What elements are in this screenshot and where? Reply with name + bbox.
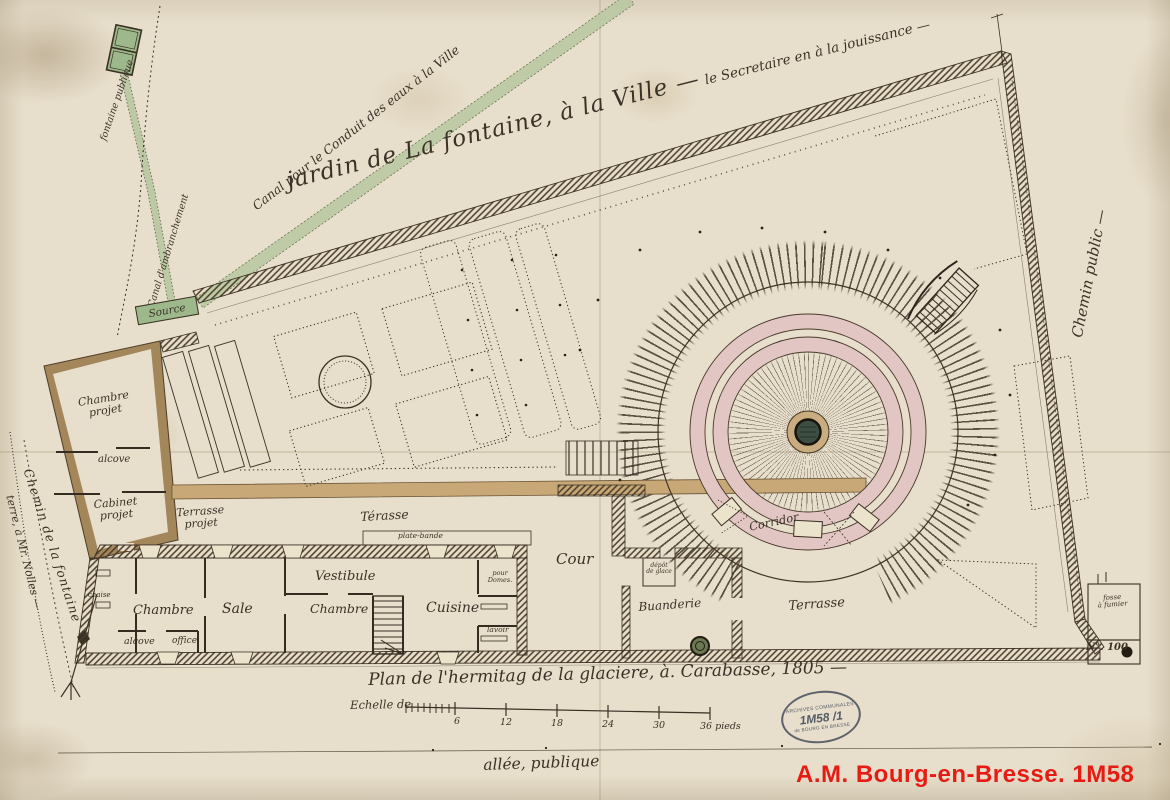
- room-depot-glace: dépôt de glace: [644, 563, 674, 576]
- glaciere: [658, 258, 985, 582]
- room-chaise: chaise: [88, 592, 111, 599]
- room-office: office: [172, 637, 197, 646]
- parcel-number: N°. 100: [1086, 643, 1128, 654]
- terrace-band: [172, 478, 866, 499]
- room-lavoir: lavoir: [487, 626, 509, 634]
- right-beds: [875, 99, 1088, 628]
- room-alcove-2: alcove: [98, 455, 130, 466]
- room-chambre-2: Chambre: [310, 602, 368, 615]
- room-sale: Sale: [222, 602, 253, 617]
- room-cuisine: Cuisine: [426, 601, 479, 616]
- room-pour-domestiques: pour Domes.: [485, 570, 515, 584]
- scale-label: Echelle de: [350, 698, 411, 711]
- scale-tick-18: 18: [550, 718, 564, 729]
- area-terasse-2: Térasse: [360, 507, 409, 523]
- fosse-fumier-label: fosse à fumier: [1090, 593, 1135, 611]
- room-vestibule: Vestibule: [315, 570, 376, 584]
- room-chambre-1: Chambre: [133, 604, 194, 618]
- scale-tick-36: 36 pieds: [700, 721, 741, 732]
- allee-publique-label: allée, publique: [483, 753, 600, 773]
- parterre: [163, 222, 603, 486]
- plan-scan: Canal pour le Conduit des eaux à la Vill…: [0, 0, 1170, 800]
- glaciere-stairs: [903, 258, 985, 343]
- room-alcove-1: alcove: [124, 637, 155, 647]
- scale-tick-12: 12: [499, 717, 513, 728]
- archive-reference: A.M. Bourg-en-Bresse. 1M58: [796, 761, 1134, 789]
- area-cour: Cour: [556, 552, 593, 568]
- allee-lines: [58, 743, 1161, 753]
- garden-tree-dots: [461, 227, 1012, 507]
- scale-tick-24: 24: [601, 719, 615, 730]
- area-terrasse-projet: Terrasse projet: [168, 504, 233, 532]
- plate-bande-label: plate-bande: [398, 532, 443, 540]
- scale-tick-30: 30: [652, 720, 666, 731]
- scale-tick-6: 6: [450, 716, 464, 727]
